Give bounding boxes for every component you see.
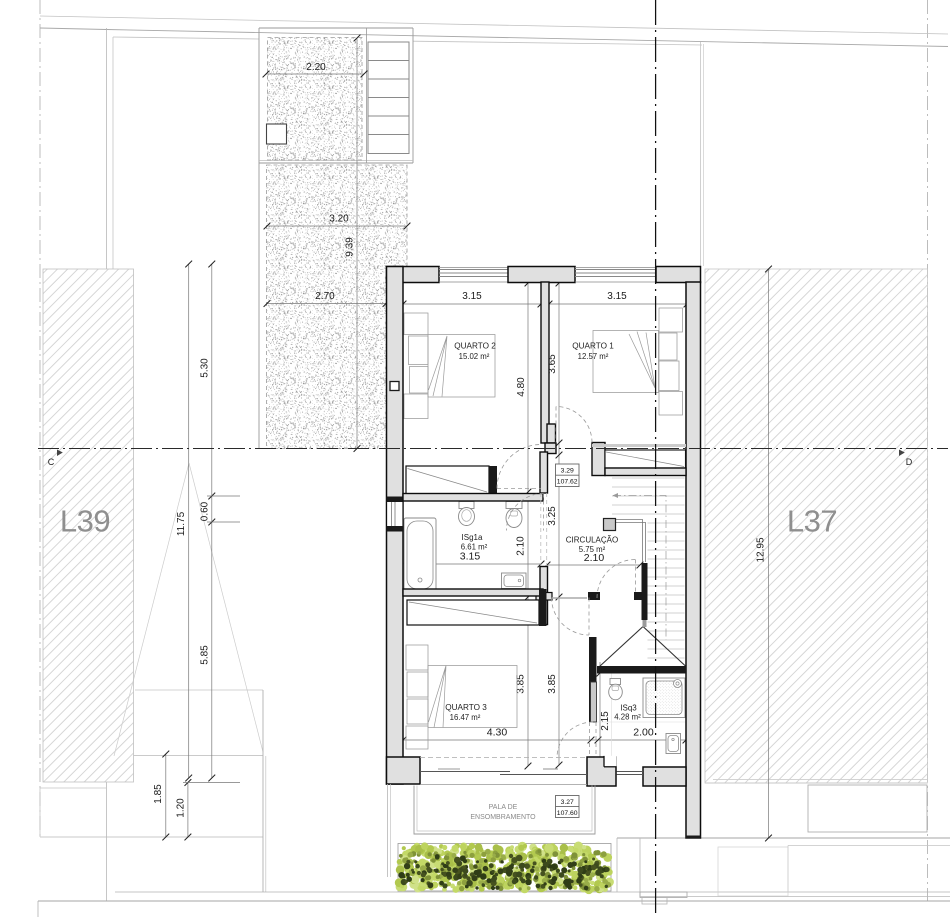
svg-text:2.70: 2.70 (315, 291, 335, 302)
svg-text:4.80: 4.80 (516, 377, 527, 397)
svg-text:16.47 m²: 16.47 m² (450, 713, 481, 722)
svg-text:4.28 m²: 4.28 m² (614, 713, 641, 722)
svg-text:1.85: 1.85 (153, 784, 164, 804)
svg-text:3.20: 3.20 (329, 214, 349, 225)
svg-text:6.61 m²: 6.61 m² (461, 543, 488, 552)
svg-text:3.27: 3.27 (561, 799, 574, 806)
svg-text:D: D (906, 457, 913, 467)
svg-text:3.15: 3.15 (462, 291, 482, 302)
svg-text:QUARTO 1: QUARTO 1 (572, 342, 614, 351)
svg-text:107.60: 107.60 (557, 810, 578, 817)
svg-text:107.62: 107.62 (557, 479, 578, 486)
svg-text:4.30: 4.30 (487, 727, 508, 739)
svg-text:C: C (48, 457, 55, 467)
svg-text:3.15: 3.15 (607, 291, 627, 302)
svg-text:CIRCULAÇÃO: CIRCULAÇÃO (566, 536, 618, 545)
svg-text:2.00: 2.00 (633, 727, 654, 739)
svg-text:11.75: 11.75 (176, 511, 187, 536)
svg-text:9.39: 9.39 (345, 237, 356, 257)
svg-text:12.95: 12.95 (756, 537, 767, 562)
svg-text:2.20: 2.20 (306, 62, 326, 73)
svg-text:L39: L39 (60, 504, 110, 539)
svg-text:1.20: 1.20 (176, 798, 187, 818)
svg-text:ISg1a: ISg1a (462, 533, 483, 542)
svg-text:5.85: 5.85 (200, 645, 211, 665)
svg-text:5.30: 5.30 (200, 358, 211, 378)
svg-text:15.02 m²: 15.02 m² (459, 352, 490, 361)
svg-text:ENSOMBRAMENTO: ENSOMBRAMENTO (470, 814, 536, 821)
svg-text:3.25: 3.25 (547, 506, 558, 526)
svg-text:QUARTO 2: QUARTO 2 (454, 342, 496, 351)
svg-text:PALA DE: PALA DE (489, 804, 518, 811)
svg-text:3.15: 3.15 (460, 551, 481, 563)
svg-text:0.60: 0.60 (200, 501, 211, 521)
svg-text:5.75 m²: 5.75 m² (579, 545, 606, 554)
svg-text:3.85: 3.85 (547, 674, 558, 694)
svg-text:QUARTO 3: QUARTO 3 (445, 703, 487, 712)
svg-text:12.57 m²: 12.57 m² (578, 352, 609, 361)
svg-text:L37: L37 (787, 504, 837, 539)
svg-text:3.29: 3.29 (561, 468, 574, 475)
svg-text:2.15: 2.15 (600, 711, 611, 731)
svg-text:ISq3: ISq3 (620, 704, 637, 713)
svg-text:2.10: 2.10 (516, 536, 527, 556)
